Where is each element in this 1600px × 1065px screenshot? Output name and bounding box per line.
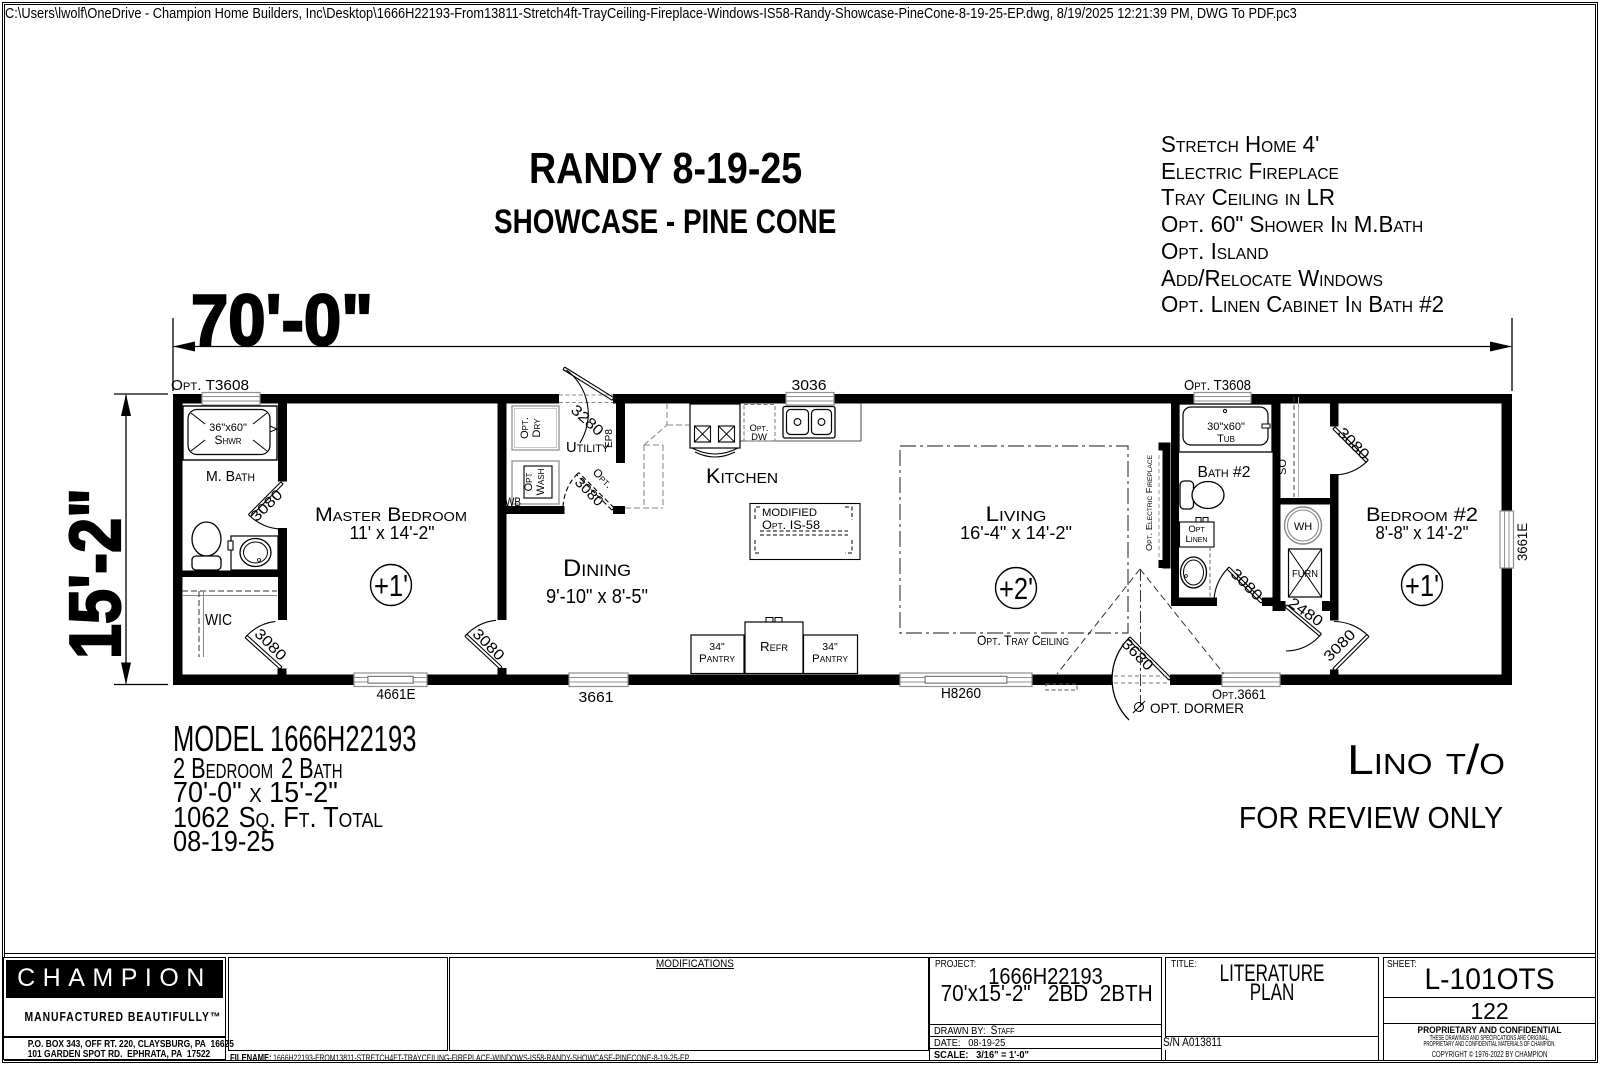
svg-text:Refr: Refr [760, 639, 789, 654]
svg-text:Dining: Dining [563, 555, 631, 582]
svg-text:SO: SO [1277, 459, 1289, 475]
svg-text:EP8: EP8 [604, 429, 615, 448]
svg-text:Kitchen: Kitchen [706, 465, 778, 488]
svg-text:15'-2": 15'-2" [56, 488, 136, 659]
svg-text:OPT. DORMER: OPT. DORMER [1150, 700, 1244, 716]
svg-text:4661E: 4661E [377, 686, 416, 703]
svg-text:3036: 3036 [792, 377, 827, 394]
svg-text:FURN: FURN [1292, 568, 1318, 580]
svg-text:WH: WH [1294, 521, 1312, 533]
svg-text:Opt: Opt [523, 472, 535, 491]
svg-text:Pantry: Pantry [699, 653, 736, 665]
svg-text:16'-4" x 14'-2": 16'-4" x 14'-2" [960, 523, 1072, 543]
svg-text:Opt. T3608: Opt. T3608 [171, 377, 249, 394]
svg-text:+1': +1' [374, 568, 408, 603]
svg-text:Linen: Linen [1185, 534, 1207, 545]
svg-text:30"x60": 30"x60" [1207, 421, 1245, 433]
svg-text:34": 34" [709, 641, 725, 653]
svg-text:3661: 3661 [579, 689, 614, 706]
svg-text:Opt. T3608: Opt. T3608 [1184, 377, 1251, 394]
svg-text:3280: 3280 [567, 402, 607, 440]
svg-text:Bath #2: Bath #2 [1198, 464, 1251, 481]
svg-text:9'-10" x 8'-5": 9'-10" x 8'-5" [546, 586, 648, 608]
svg-text:11' x 14'-2": 11' x 14'-2" [350, 523, 435, 543]
svg-text:Opt. IS-58: Opt. IS-58 [762, 518, 820, 532]
svg-text:+2': +2' [999, 571, 1033, 606]
svg-text:Dry: Dry [531, 418, 543, 438]
svg-text:3080: 3080 [251, 625, 290, 664]
svg-text:WB: WB [505, 495, 521, 509]
svg-text:Opt.: Opt. [519, 417, 531, 439]
svg-text:DW: DW [751, 432, 767, 443]
svg-text:3080: 3080 [1320, 626, 1359, 665]
svg-text:Opt. Electric Fireplace: Opt. Electric Fireplace [1144, 455, 1154, 551]
svg-text:3080: 3080 [247, 486, 286, 525]
svg-text:Wash: Wash [535, 468, 547, 495]
svg-text:3080: 3080 [1334, 424, 1373, 463]
svg-text:Shwr: Shwr [214, 433, 241, 447]
svg-text:Opt. Tray Ceiling: Opt. Tray Ceiling [977, 632, 1069, 648]
svg-text:8'-8" x 14'-2": 8'-8" x 14'-2" [1376, 523, 1469, 543]
svg-text:3661E: 3661E [1514, 523, 1530, 561]
svg-text:3680: 3680 [1118, 635, 1157, 674]
svg-text:M. Bath: M. Bath [206, 468, 255, 485]
svg-text:34": 34" [822, 641, 838, 653]
svg-text:H8260: H8260 [941, 685, 981, 702]
svg-text:Tub: Tub [1217, 433, 1235, 445]
svg-text:70'-0": 70'-0" [191, 281, 373, 361]
svg-text:3080: 3080 [1227, 565, 1266, 604]
svg-text:WIC: WIC [205, 612, 232, 629]
svg-text:+1': +1' [1405, 568, 1439, 603]
svg-text:Pantry: Pantry [812, 653, 849, 665]
